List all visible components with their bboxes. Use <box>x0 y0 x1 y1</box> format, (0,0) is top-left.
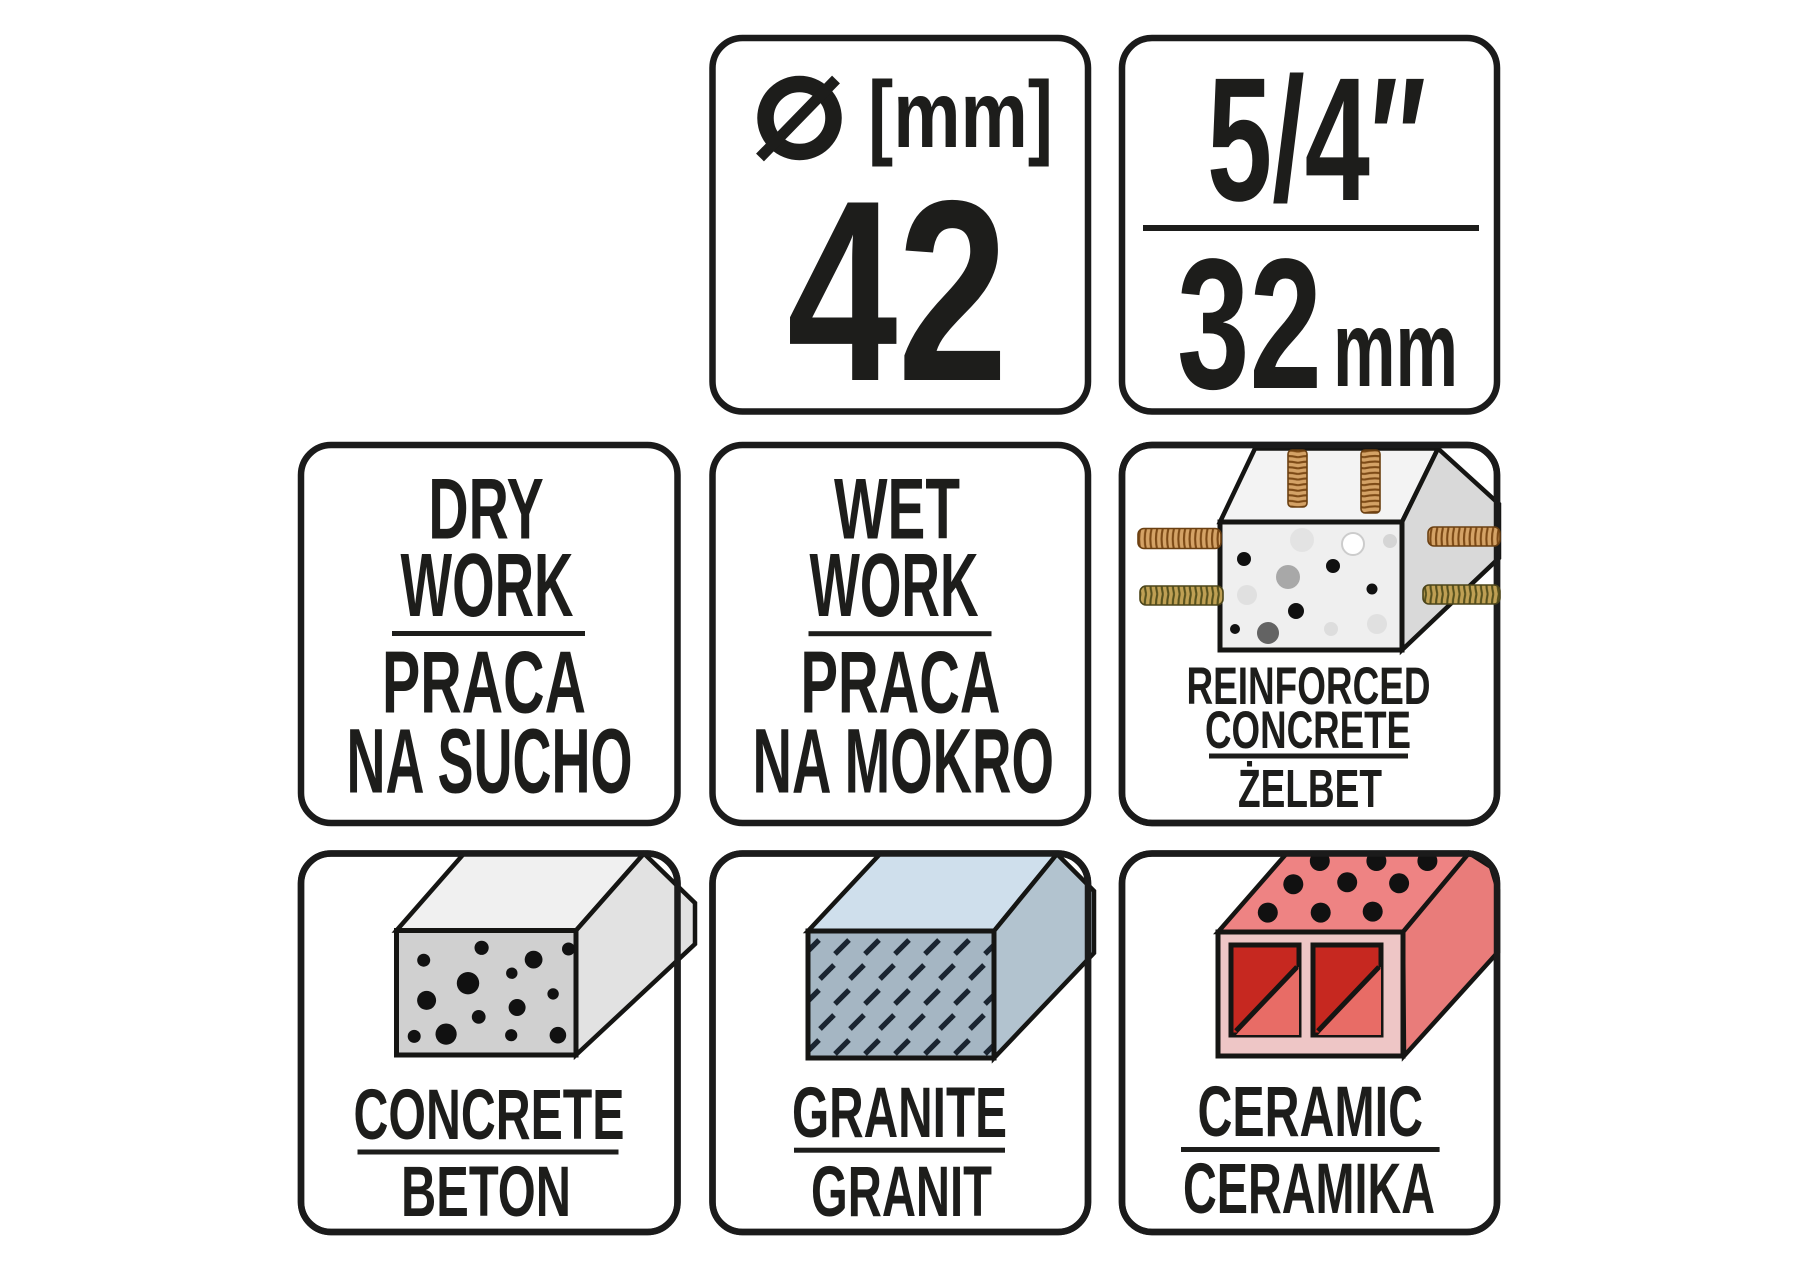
svg-text:CONCRETE: CONCRETE <box>354 1076 625 1155</box>
svg-text:ŻELBET: ŻELBET <box>1238 759 1382 819</box>
svg-text:42: 42 <box>787 146 1008 435</box>
svg-text:CONCRETE: CONCRETE <box>1205 701 1411 760</box>
svg-text:GRANITE: GRANITE <box>792 1074 1007 1153</box>
svg-text:NA MOKRO: NA MOKRO <box>753 711 1055 813</box>
svg-text:5/4″: 5/4″ <box>1207 42 1426 238</box>
svg-text:mm: mm <box>1333 288 1458 409</box>
svg-text:CERAMIKA: CERAMIKA <box>1183 1150 1435 1229</box>
svg-text:BETON: BETON <box>401 1153 571 1232</box>
svg-text:GRANIT: GRANIT <box>811 1153 992 1232</box>
svg-text:NA SUCHO: NA SUCHO <box>347 711 633 813</box>
svg-text:CERAMIC: CERAMIC <box>1198 1073 1424 1152</box>
svg-text:32: 32 <box>1177 221 1322 428</box>
svg-text:WORK: WORK <box>401 536 574 636</box>
svg-text:WORK: WORK <box>810 536 979 636</box>
